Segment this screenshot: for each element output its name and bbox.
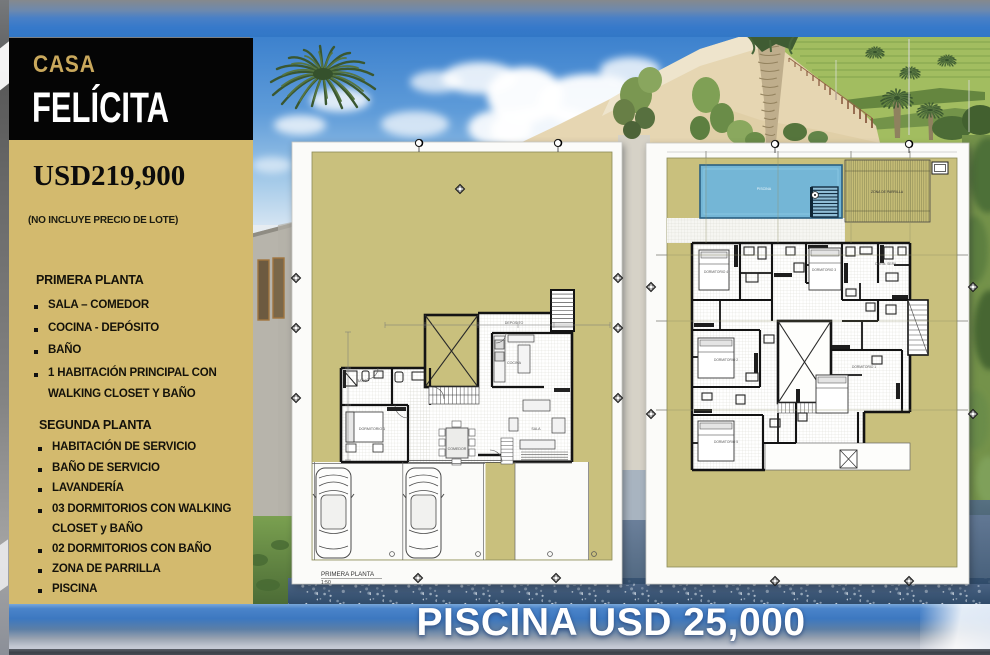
svg-text:PISCINA: PISCINA (757, 187, 772, 191)
svg-text:COCINA: COCINA (507, 361, 522, 365)
svg-text:COMEDOR: COMEDOR (448, 447, 467, 451)
svg-text:DORMITORIO 1: DORMITORIO 1 (359, 427, 385, 431)
svg-text:DORMITORIO 3: DORMITORIO 3 (812, 268, 836, 272)
svg-text:BAÑO: BAÑO (357, 378, 367, 383)
svg-text:ZONA DE PARRILLA: ZONA DE PARRILLA (871, 190, 904, 194)
svg-text:DORMITORIO 5: DORMITORIO 5 (714, 440, 738, 444)
svg-text:DEPOSITO: DEPOSITO (505, 321, 524, 325)
svg-text:DORM. SERV.: DORM. SERV. (875, 262, 897, 266)
svg-text:DORMITORIO 1: DORMITORIO 1 (852, 365, 876, 369)
svg-text:DORMITORIO 2: DORMITORIO 2 (714, 358, 738, 362)
svg-text:DORMITORIO 4: DORMITORIO 4 (704, 270, 728, 274)
svg-text:SALA: SALA (531, 427, 541, 431)
svg-text:PRIMERA PLANTA: PRIMERA PLANTA (321, 571, 375, 578)
svg-text:1:50: 1:50 (321, 580, 331, 586)
